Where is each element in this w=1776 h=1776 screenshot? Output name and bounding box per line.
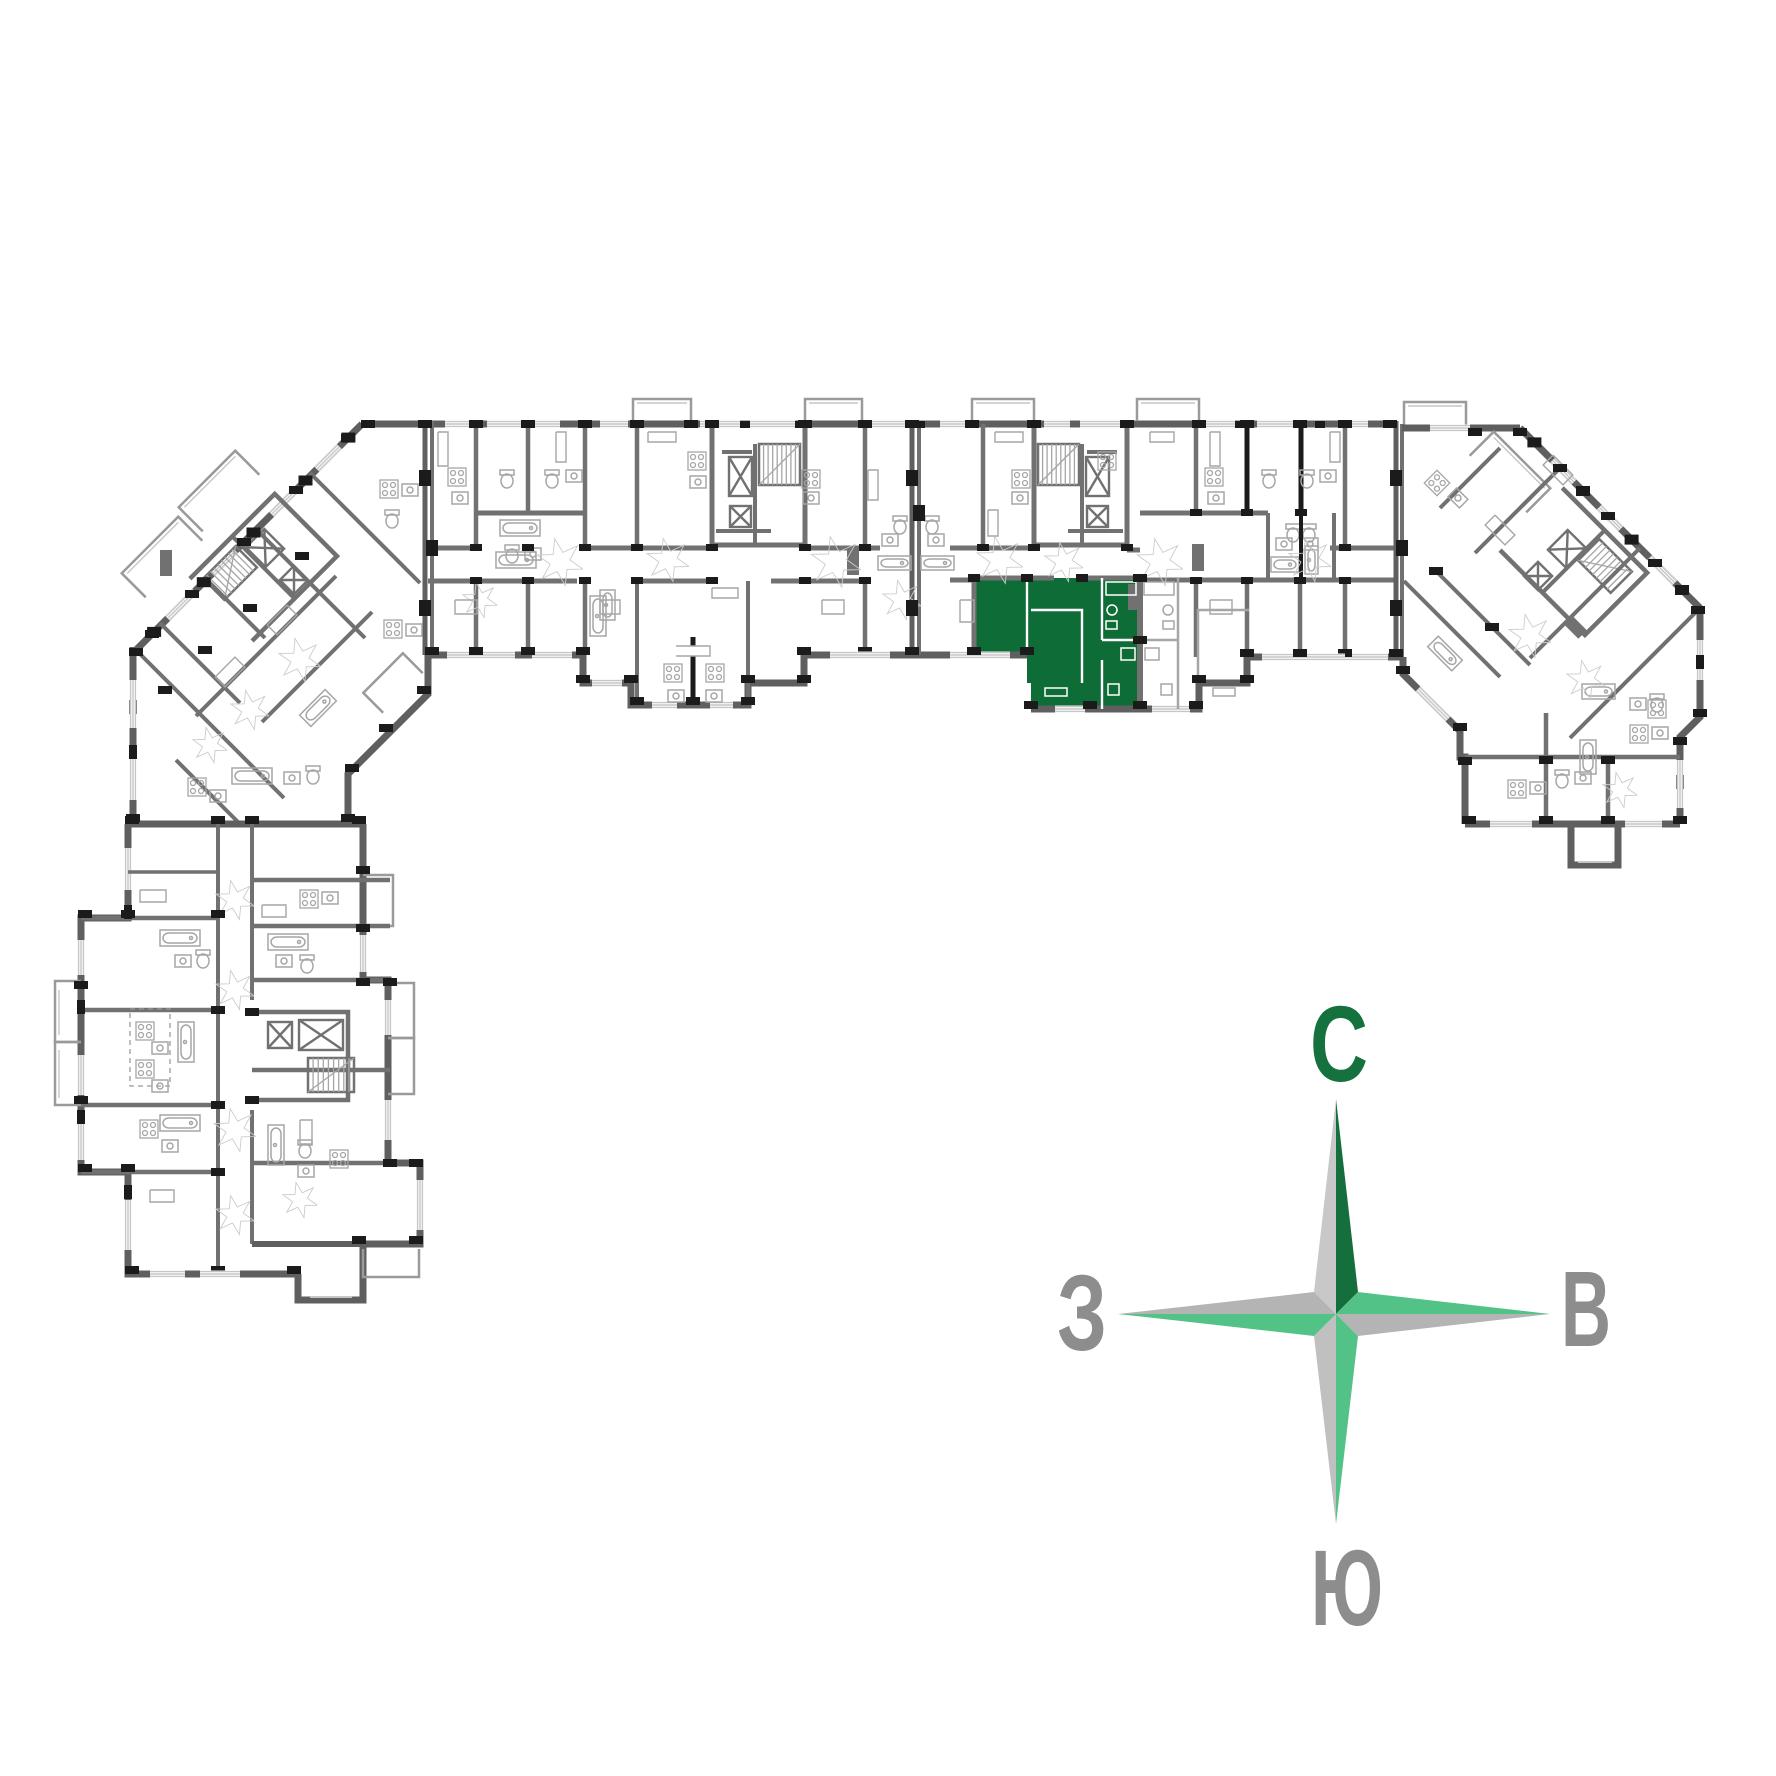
svg-text:С: С: [1310, 983, 1368, 1104]
svg-text:З: З: [1057, 1252, 1107, 1373]
svg-text:Ю: Ю: [1311, 1527, 1383, 1648]
svg-text:В: В: [1561, 1248, 1611, 1369]
